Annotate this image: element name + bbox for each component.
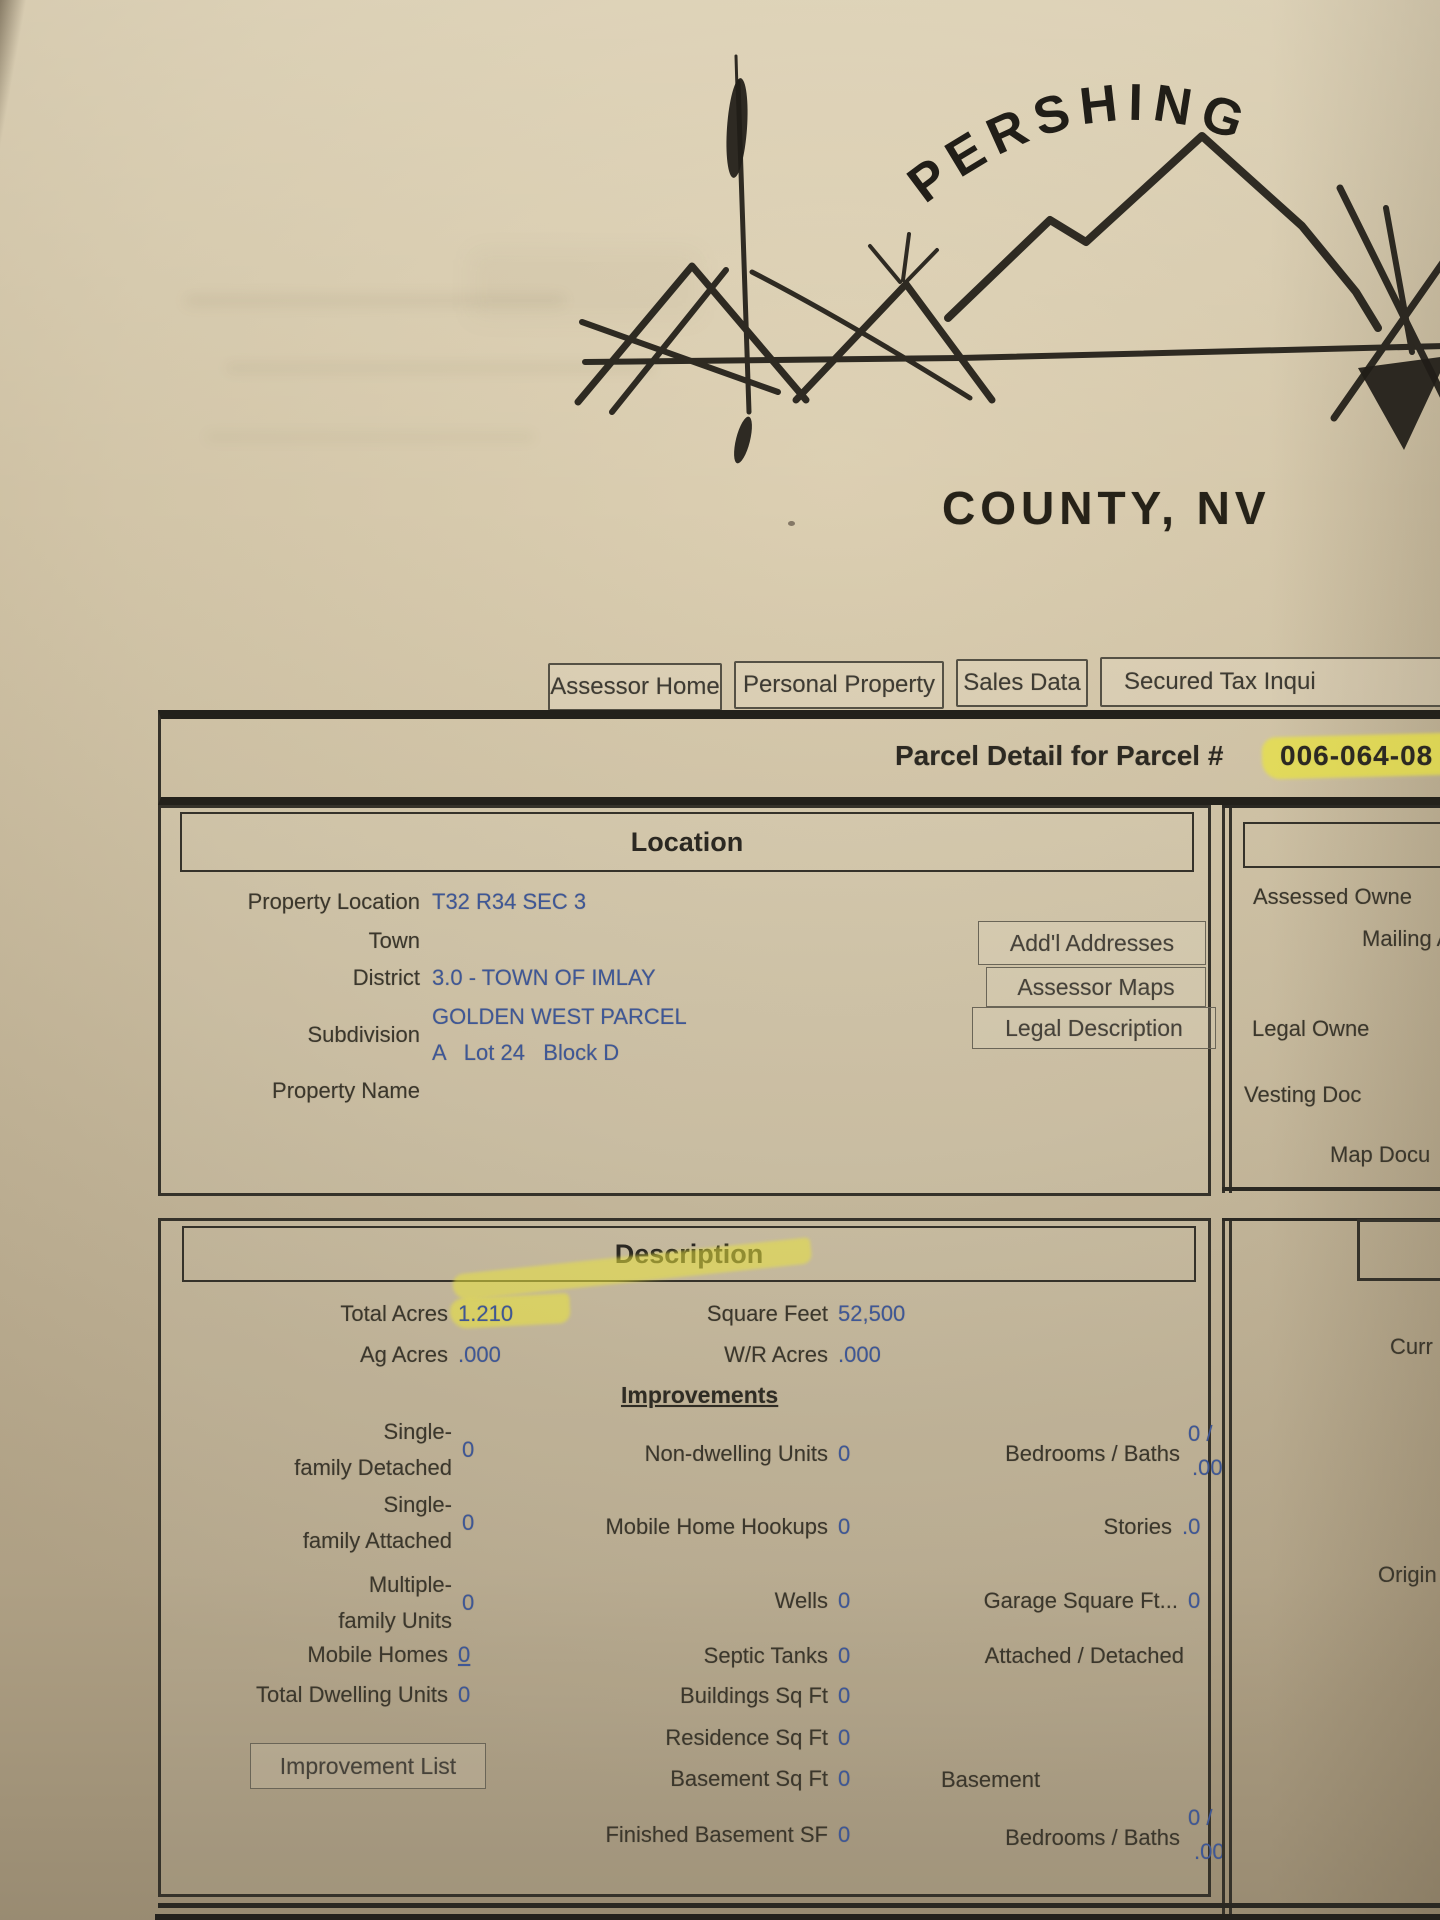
- mobile-homes-value-link[interactable]: 0: [458, 1642, 470, 1668]
- basement-bedrooms-baths-value-top: 0 /: [1188, 1805, 1212, 1831]
- parcel-number: 006-064-08: [1280, 740, 1433, 772]
- improvement-list-button[interactable]: Improvement List: [250, 1743, 486, 1789]
- addl-addresses-button[interactable]: Add'l Addresses: [978, 921, 1206, 965]
- assessor-parcel-page: PERSHING COUNTY, NV Assessor Home Person…: [0, 0, 1440, 1920]
- residence-sq-ft-label: Residence Sq Ft: [665, 1725, 828, 1751]
- button-label: Assessor Maps: [1017, 974, 1174, 1001]
- subdivision-value-line1: GOLDEN WEST PARCEL: [432, 1004, 687, 1030]
- multiple-family-units-value: 0: [462, 1590, 474, 1616]
- single-family-detached-label-line1: Single-: [384, 1419, 452, 1445]
- total-acres-label: Total Acres: [340, 1301, 448, 1327]
- value-panel-left-border-inner: [1229, 1218, 1232, 1920]
- basement-label: Basement: [941, 1767, 1040, 1793]
- owner-panel-left-border-inner: [1229, 805, 1232, 1193]
- owner-panel-left-border: [1222, 805, 1225, 1193]
- paper-speck: [788, 521, 795, 526]
- district-label: District: [353, 965, 420, 991]
- total-acres-value: 1.210: [458, 1301, 513, 1327]
- nav-personal-property-button[interactable]: Personal Property: [734, 661, 944, 709]
- garage-square-ft-value: 0: [1188, 1588, 1200, 1614]
- owner-panel-top-border: [1222, 805, 1440, 808]
- paper-bleed-smudge: [205, 432, 535, 442]
- square-feet-label: Square Feet: [707, 1301, 828, 1327]
- vesting-doc-label: Vesting Doc: [1244, 1082, 1361, 1108]
- button-label: Improvement List: [280, 1753, 456, 1780]
- nav-button-label: Secured Tax Inqui: [1124, 668, 1316, 696]
- description-section: [158, 1218, 1211, 1897]
- mobile-homes-label: Mobile Homes: [307, 1642, 448, 1668]
- location-header-label: Location: [631, 827, 744, 858]
- district-value: 3.0 - TOWN OF IMLAY: [432, 965, 656, 991]
- county-title: COUNTY, NV: [942, 481, 1271, 535]
- pershing-county-logo: PERSHING: [540, 20, 1440, 495]
- ag-acres-value: .000: [458, 1342, 501, 1368]
- basement-bedrooms-baths-value-bottom: .00: [1194, 1839, 1225, 1865]
- value-panel-header: [1357, 1219, 1440, 1281]
- button-label: Legal Description: [1005, 1015, 1183, 1042]
- map-doc-label: Map Docu: [1330, 1142, 1430, 1168]
- non-dwelling-units-label: Non-dwelling Units: [645, 1441, 828, 1467]
- owner-panel-bottom-border: [1222, 1187, 1440, 1191]
- location-header: Location: [180, 812, 1194, 872]
- multiple-family-units-label-line2: family Units: [338, 1608, 452, 1634]
- bedrooms-baths-value-bottom: .00: [1192, 1455, 1223, 1481]
- subdivision-value-line2: A Lot 24 Block D: [432, 1040, 619, 1066]
- total-dwelling-units-value: 0: [458, 1682, 470, 1708]
- wr-acres-label: W/R Acres: [724, 1342, 828, 1368]
- wells-value: 0: [838, 1588, 850, 1614]
- multiple-family-units-label-line1: Multiple-: [369, 1572, 452, 1598]
- property-location-value: T32 R34 SEC 3: [432, 889, 586, 915]
- next-section-border: [158, 1903, 1440, 1908]
- button-label: Add'l Addresses: [1010, 930, 1174, 957]
- original-value-label: Origin: [1378, 1562, 1437, 1588]
- parcel-banner: [158, 710, 1440, 805]
- town-label: Town: [369, 928, 420, 954]
- current-value-label: Curr: [1390, 1334, 1433, 1360]
- stories-value: .0: [1182, 1514, 1200, 1540]
- basement-bedrooms-baths-label: Bedrooms / Baths: [1005, 1825, 1180, 1851]
- improvements-header: Improvements: [621, 1382, 778, 1409]
- basement-sq-ft-label: Basement Sq Ft: [670, 1766, 828, 1792]
- nav-secured-tax-inquiry-button[interactable]: Secured Tax Inqui: [1100, 657, 1440, 707]
- mobile-home-hookups-label: Mobile Home Hookups: [605, 1514, 828, 1540]
- septic-tanks-label: Septic Tanks: [704, 1643, 828, 1669]
- assessed-owner-label: Assessed Owne: [1253, 884, 1412, 910]
- nav-assessor-home-button[interactable]: Assessor Home: [548, 663, 722, 711]
- single-family-attached-label-line1: Single-: [384, 1492, 452, 1518]
- nav-sales-data-button[interactable]: Sales Data: [956, 659, 1088, 707]
- single-family-attached-value: 0: [462, 1510, 474, 1536]
- single-family-detached-value: 0: [462, 1437, 474, 1463]
- owner-panel-header: [1243, 822, 1440, 868]
- total-dwelling-units-label: Total Dwelling Units: [256, 1682, 448, 1708]
- bedrooms-baths-value-top: 0 /: [1188, 1421, 1212, 1447]
- nav-button-label: Sales Data: [963, 669, 1080, 697]
- bedrooms-baths-label: Bedrooms / Baths: [1005, 1441, 1180, 1467]
- wr-acres-value: .000: [838, 1342, 881, 1368]
- mobile-home-hookups-value: 0: [838, 1514, 850, 1540]
- value-panel-left-border: [1222, 1218, 1225, 1920]
- attached-detached-label: Attached / Detached: [985, 1643, 1184, 1669]
- finished-basement-sf-label: Finished Basement SF: [605, 1822, 828, 1848]
- basement-sq-ft-value: 0: [838, 1766, 850, 1792]
- non-dwelling-units-value: 0: [838, 1441, 850, 1467]
- square-feet-value: 52,500: [838, 1301, 905, 1327]
- stories-label: Stories: [1104, 1514, 1172, 1540]
- nav-button-label: Assessor Home: [550, 673, 719, 701]
- nav-button-label: Personal Property: [743, 671, 935, 699]
- buildings-sq-ft-label: Buildings Sq Ft: [680, 1683, 828, 1709]
- subdivision-label: Subdivision: [307, 1022, 420, 1048]
- finished-basement-sf-value: 0: [838, 1822, 850, 1848]
- residence-sq-ft-value: 0: [838, 1725, 850, 1751]
- single-family-detached-label-line2: family Detached: [294, 1455, 452, 1481]
- banner-title: Parcel Detail for Parcel #: [895, 740, 1223, 772]
- legal-description-button[interactable]: Legal Description: [972, 1007, 1216, 1049]
- legal-owner-label: Legal Owne: [1252, 1016, 1369, 1042]
- single-family-attached-label-line2: family Attached: [303, 1528, 452, 1554]
- buildings-sq-ft-value: 0: [838, 1683, 850, 1709]
- septic-tanks-value: 0: [838, 1643, 850, 1669]
- property-location-label: Property Location: [248, 889, 420, 915]
- garage-square-ft-label: Garage Square Ft...: [984, 1588, 1178, 1614]
- property-name-label: Property Name: [272, 1078, 420, 1104]
- wells-label: Wells: [775, 1588, 828, 1614]
- ag-acres-label: Ag Acres: [360, 1342, 448, 1368]
- next-section-top-bar: [155, 1914, 1440, 1920]
- assessor-maps-button[interactable]: Assessor Maps: [986, 967, 1206, 1007]
- mailing-address-label: Mailing A: [1362, 926, 1440, 952]
